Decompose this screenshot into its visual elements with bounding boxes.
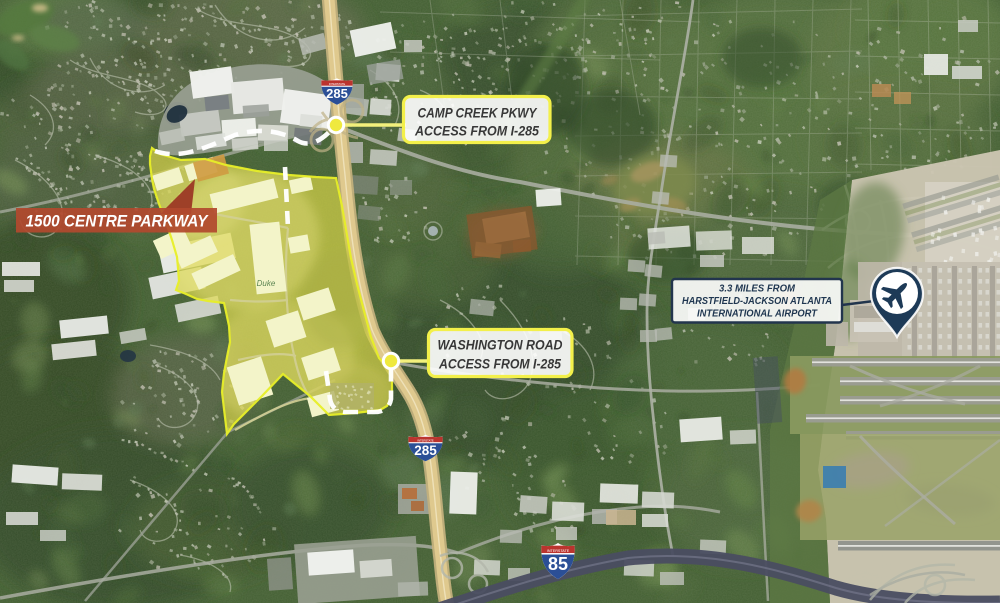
svg-text:INTERSTATE: INTERSTATE: [547, 549, 570, 553]
svg-text:85: 85: [548, 554, 568, 574]
svg-text:285: 285: [326, 86, 348, 101]
svg-text:ACCESS FROM I-285: ACCESS FROM I-285: [414, 124, 540, 140]
svg-text:CAMP CREEK PKWY: CAMP CREEK PKWY: [418, 106, 538, 122]
svg-text:INTERSTATE: INTERSTATE: [329, 82, 346, 86]
svg-text:WASHINGTON ROAD: WASHINGTON ROAD: [438, 338, 563, 354]
svg-text:INTERNATIONAL AIRPORT: INTERNATIONAL AIRPORT: [697, 308, 818, 320]
svg-text:INTERSTATE: INTERSTATE: [417, 438, 434, 442]
svg-text:HARSTFIELD-JACKSON ATLANTA: HARSTFIELD-JACKSON ATLANTA: [682, 295, 832, 307]
svg-text:1500 CENTRE PARKWAY: 1500 CENTRE PARKWAY: [26, 212, 209, 231]
svg-text:285: 285: [414, 443, 437, 458]
svg-text:ACCESS FROM I-285: ACCESS FROM I-285: [438, 357, 562, 373]
svg-text:Duke: Duke: [257, 279, 276, 288]
svg-text:3.3 MILES FROM: 3.3 MILES FROM: [719, 283, 795, 295]
